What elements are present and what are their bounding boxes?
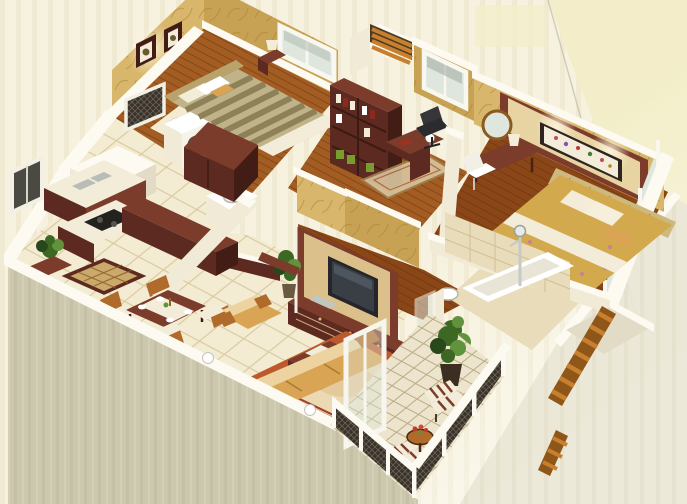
- lamp: [266, 40, 278, 50]
- sphere-lamp: [305, 405, 316, 416]
- floorplan-stage: [0, 0, 687, 504]
- floorplan-render: [0, 0, 687, 504]
- plate: [138, 305, 146, 310]
- plate: [184, 310, 192, 315]
- red-flowers: [413, 427, 418, 432]
- centerpiece: [164, 303, 169, 308]
- sphere-lamp: [203, 353, 214, 364]
- round-mirror: [483, 111, 511, 139]
- plate: [156, 297, 164, 302]
- table-lamp: [508, 134, 520, 146]
- plate: [166, 318, 174, 323]
